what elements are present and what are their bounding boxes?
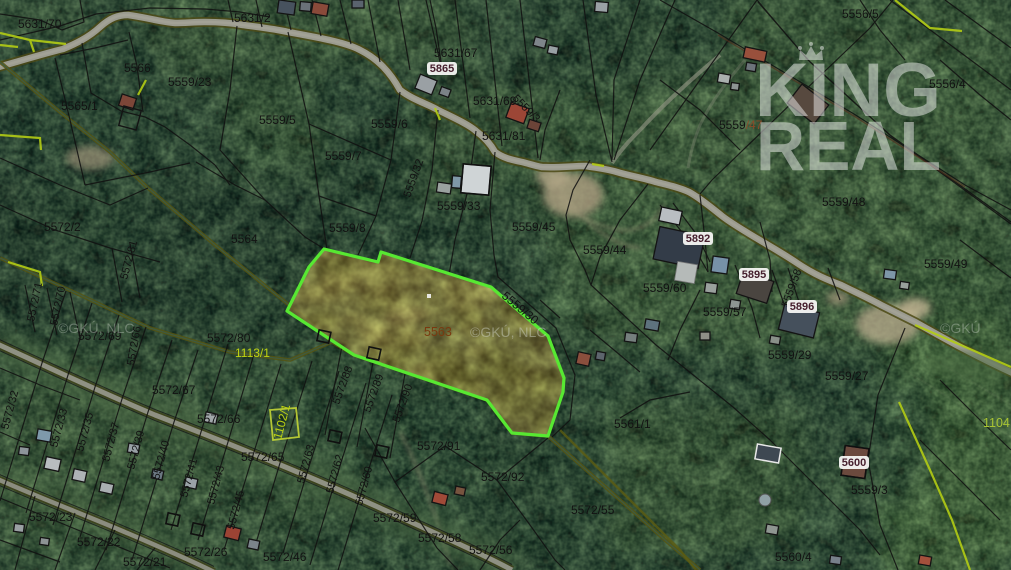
svg-text:5572/56: 5572/56 — [469, 543, 513, 557]
svg-text:5572/55: 5572/55 — [571, 503, 615, 517]
svg-text:5559/48: 5559/48 — [822, 195, 866, 209]
svg-text:5572/46: 5572/46 — [263, 550, 307, 564]
svg-text:5559/57: 5559/57 — [703, 305, 747, 319]
svg-text:5572/92: 5572/92 — [481, 470, 525, 484]
svg-text:5631/81: 5631/81 — [482, 129, 526, 143]
svg-text:5572/66: 5572/66 — [197, 412, 241, 426]
svg-text:5600: 5600 — [842, 457, 866, 469]
svg-text:1104: 1104 — [983, 416, 1010, 430]
svg-text:5560/4: 5560/4 — [775, 550, 812, 564]
svg-text:5631/70: 5631/70 — [18, 17, 62, 31]
svg-text:5572/26: 5572/26 — [184, 545, 228, 559]
svg-text:5559/8: 5559/8 — [329, 221, 366, 235]
svg-text:5572/2: 5572/2 — [44, 220, 81, 234]
svg-text:5559/5: 5559/5 — [259, 113, 296, 127]
svg-text:5572/91: 5572/91 — [417, 439, 461, 453]
svg-text:5865: 5865 — [430, 63, 454, 75]
svg-text:5572/58: 5572/58 — [418, 531, 462, 545]
svg-text:5559/23: 5559/23 — [168, 75, 212, 89]
svg-text:©GKÚ, NLC: ©GKÚ, NLC — [58, 320, 134, 336]
svg-text:5892: 5892 — [686, 233, 710, 245]
svg-text:5559/44: 5559/44 — [583, 243, 627, 257]
svg-text:5572/67: 5572/67 — [152, 383, 196, 397]
svg-text:©GKÚ: ©GKÚ — [940, 320, 981, 336]
svg-text:1113/1: 1113/1 — [235, 346, 270, 360]
svg-text:REAL: REAL — [756, 107, 941, 185]
svg-text:5564: 5564 — [231, 232, 258, 246]
svg-text:5895: 5895 — [742, 269, 766, 281]
svg-text:5559/49: 5559/49 — [924, 257, 968, 271]
svg-text:5572/23: 5572/23 — [29, 510, 73, 524]
svg-text:5572/65: 5572/65 — [241, 450, 285, 464]
svg-text:5559/33: 5559/33 — [437, 199, 481, 213]
svg-text:5556/5: 5556/5 — [842, 7, 879, 21]
svg-text:5561/1: 5561/1 — [614, 417, 651, 431]
svg-text:5563: 5563 — [424, 325, 452, 339]
svg-text:5572/22: 5572/22 — [77, 535, 121, 549]
svg-text:5631/2: 5631/2 — [234, 11, 271, 25]
svg-text:5559/60: 5559/60 — [643, 281, 687, 295]
svg-text:5559/45: 5559/45 — [512, 220, 556, 234]
svg-text:5559/3: 5559/3 — [851, 483, 888, 497]
svg-text:©GKÚ, NLC: ©GKÚ, NLC — [470, 324, 546, 340]
svg-text:5559/27: 5559/27 — [825, 369, 869, 383]
svg-text:5572/59: 5572/59 — [373, 511, 417, 525]
svg-text:5572/21: 5572/21 — [123, 555, 167, 569]
svg-text:5559/6: 5559/6 — [371, 117, 408, 131]
svg-text:5559/7: 5559/7 — [325, 149, 362, 163]
svg-text:5559/29: 5559/29 — [768, 348, 812, 362]
svg-text:5565/1: 5565/1 — [61, 99, 98, 113]
svg-text:5566: 5566 — [124, 61, 151, 75]
svg-text:5896: 5896 — [790, 301, 814, 313]
svg-text:5631/67: 5631/67 — [434, 46, 478, 60]
svg-text:5572/80: 5572/80 — [207, 331, 251, 345]
